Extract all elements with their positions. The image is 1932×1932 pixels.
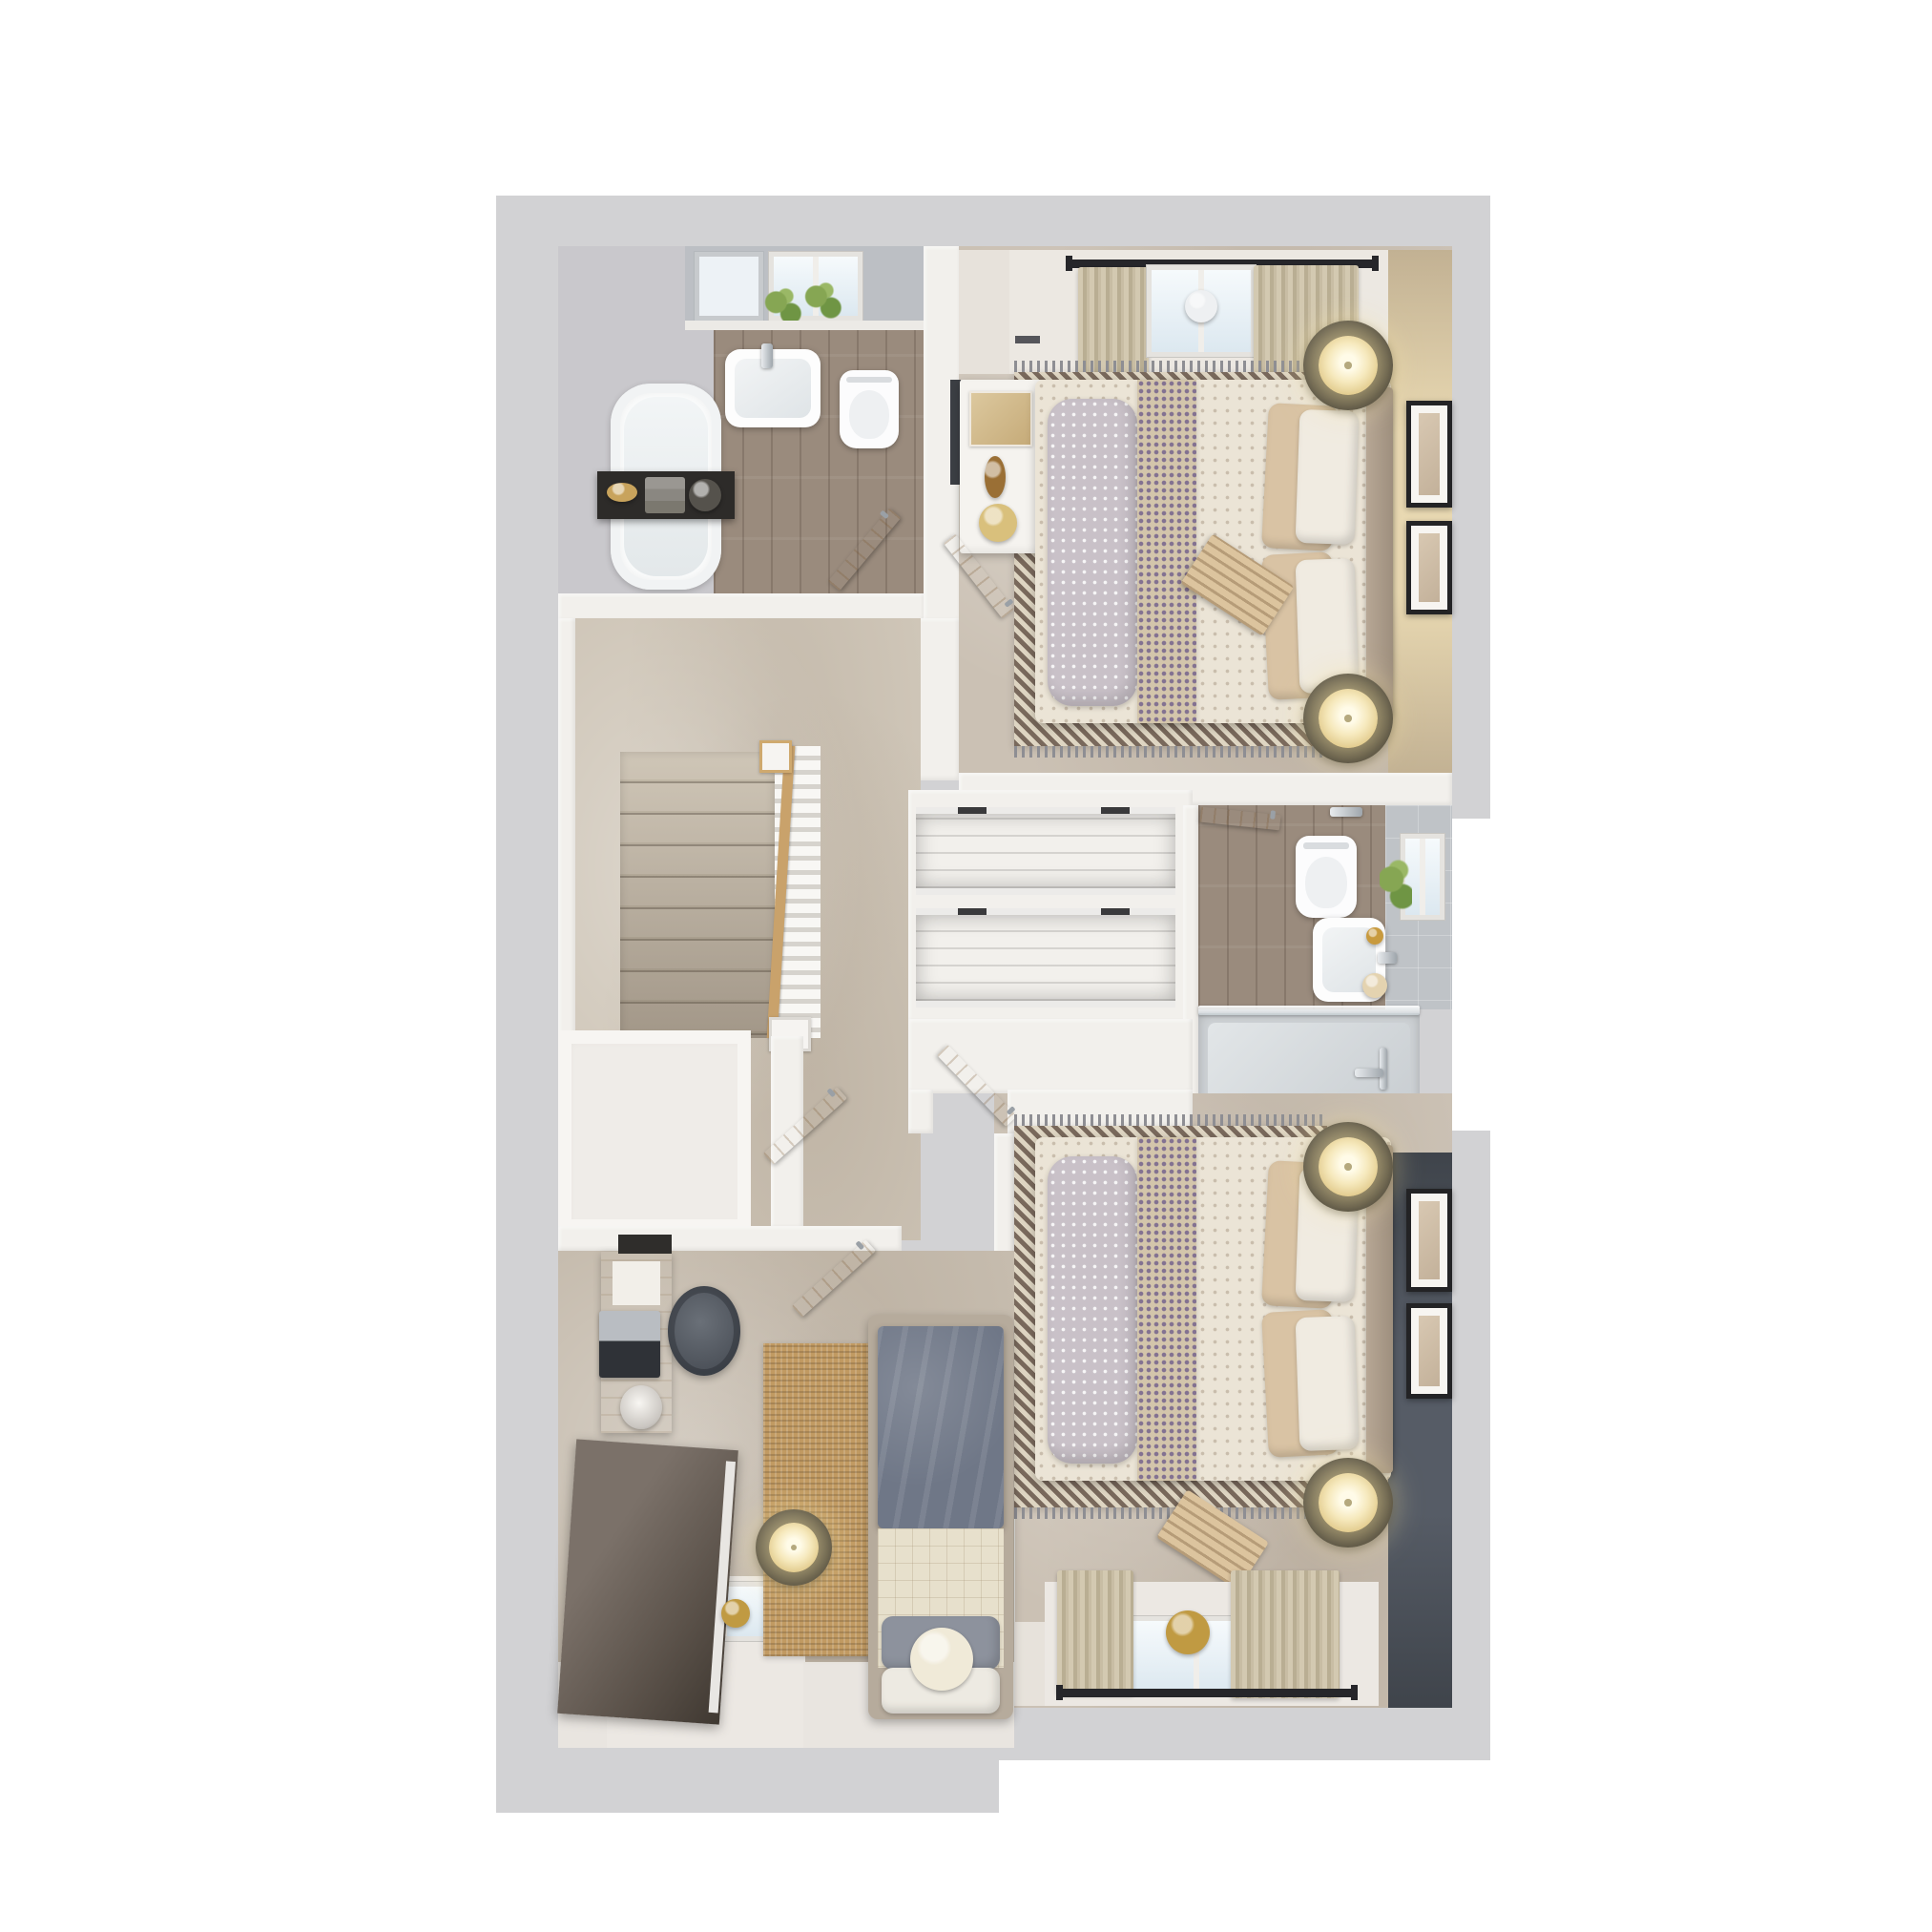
bedroom-2-curtain-right [1231,1570,1340,1698]
page-notch-right [1452,819,1491,1131]
wardrobe-2 [916,908,1175,1008]
floor-plan-page [0,0,1932,1932]
wardrobe-1 [916,807,1175,895]
single-bed-duvet [878,1326,1004,1528]
wall-landing-south [558,1226,902,1251]
bedroom-1-vent [1015,336,1040,343]
bath-tray [689,479,721,511]
bedroom-1-accent-wall [1388,250,1452,777]
lamp-2a [1319,1137,1378,1196]
study-floor-lamp [769,1523,819,1572]
bed-1-pillow-white-1 [1296,409,1360,545]
desk-book [613,1261,660,1305]
bedroom-1-frame-2 [1406,521,1452,614]
bedroom-1-frame-1 [1406,401,1452,508]
bedroom-2-frame-2 [1406,1303,1452,1399]
bedroom-2-frame-1 [1406,1189,1452,1292]
bed-1-duvet-fold [1048,399,1137,706]
desk-chair [668,1286,740,1376]
bathroom-1-skylight [695,252,763,321]
study-gold-ball [721,1599,750,1628]
wall-bedroom-2-bay-west [1015,1622,1048,1706]
bed-1-headboard [1366,387,1393,716]
stair-newel-top [759,740,792,773]
wall-bedroom-1-bay-west [959,250,1009,374]
lamp-1b [1319,689,1378,748]
stairs [620,752,775,1038]
study-dresser [557,1439,738,1724]
bathroom-1-sink [725,349,821,427]
desk-cone-lamp [620,1385,662,1429]
sink-decor-tray [1362,973,1387,998]
lamp-2b [1319,1473,1378,1532]
single-bed-cushion [910,1628,973,1691]
bath-towels [645,477,685,513]
bathroom-2-plant [1380,855,1412,916]
bedroom-1-chandelier [1185,290,1217,322]
understairs-cupboard [558,1030,751,1233]
window-decor-sunburst [1166,1610,1210,1654]
bedroom-1-wall-art [969,391,1032,447]
bed-2-duvet-fold [1048,1156,1137,1464]
sink-decor-gold [1366,927,1383,945]
bath-soap-dish [607,483,637,502]
stair-banister [775,746,821,1038]
floor-plan-render [0,0,1932,1932]
bathroom-2-toilet [1296,836,1357,918]
bed-2-pillow-white-2 [1296,1316,1360,1451]
bathroom-1-plant-2 [801,280,843,321]
desk-laptop [599,1311,660,1378]
wall-hall-doorjamb-west [908,1090,933,1133]
bathroom-1-faucet [761,343,773,368]
study-jute-rug [763,1343,882,1656]
lamp-1a [1319,336,1378,395]
console-decor-disc [979,504,1017,542]
bathroom-2-faucet [1378,952,1397,964]
console-decor-drop [985,456,1006,498]
shower-screen [1198,1006,1420,1015]
bedroom-2-curtain-rod [1063,1689,1351,1697]
shower-mixer [1355,1069,1383,1077]
bathroom-1-sill [685,321,925,330]
bathroom-1-toilet [840,370,899,448]
desk-shelf-frame [618,1235,672,1254]
page-notch-bottom-right [999,1760,1491,1814]
bed-2-runner [1137,1137,1196,1481]
bed-1-runner [1137,380,1196,723]
bedroom-2-curtain-left [1057,1570,1133,1694]
bathroom-2-towel-rail [1330,807,1362,817]
